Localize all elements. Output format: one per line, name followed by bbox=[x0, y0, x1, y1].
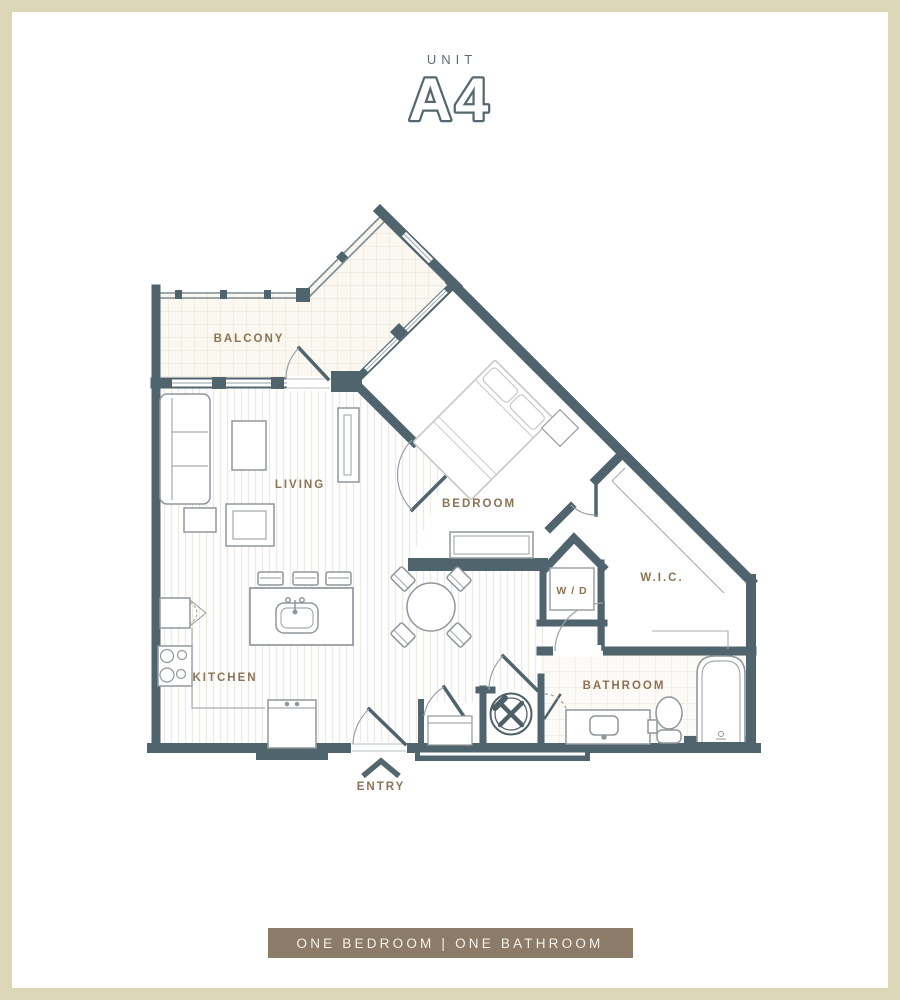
page-frame: UNIT A4 bbox=[0, 0, 900, 1000]
footer-banner: ONE BEDROOM | ONE BATHROOM bbox=[268, 928, 633, 958]
room-label-balcony: BALCONY bbox=[214, 333, 285, 345]
unit-name: A4 bbox=[409, 66, 492, 133]
vanity bbox=[566, 710, 657, 744]
floor-plan-canvas: UNIT A4 bbox=[0, 0, 900, 1000]
room-label-bathroom: BATHROOM bbox=[583, 680, 666, 692]
room-label-wd: W / D bbox=[556, 585, 587, 597]
railing-tick bbox=[220, 290, 227, 299]
entry-arrow-icon bbox=[363, 761, 399, 776]
side-table bbox=[184, 508, 216, 532]
vanity-shelf bbox=[648, 720, 657, 733]
armchair bbox=[226, 504, 274, 546]
coffee-table bbox=[232, 421, 266, 470]
banner-label: ONE BEDROOM | ONE BATHROOM bbox=[297, 936, 604, 951]
room-label-wic: W.I.C. bbox=[640, 572, 683, 584]
window-mullion bbox=[271, 377, 284, 389]
toilet bbox=[656, 697, 682, 743]
kitchen-island bbox=[250, 588, 353, 645]
bathroom-door-gap bbox=[553, 645, 603, 657]
water-heater-icon bbox=[491, 694, 532, 735]
room-label-kitchen: KITCHEN bbox=[192, 672, 257, 684]
room-label-entry: ENTRY bbox=[357, 781, 406, 793]
stove bbox=[158, 646, 192, 686]
window-mullion bbox=[212, 377, 226, 389]
room-label-living: LIVING bbox=[275, 479, 325, 491]
bar-stools bbox=[258, 572, 351, 585]
sofa bbox=[160, 394, 210, 504]
dishwasher bbox=[268, 700, 316, 748]
balcony-door-gap bbox=[287, 376, 331, 391]
unit-eyebrow: UNIT bbox=[427, 52, 477, 67]
bump-closets bbox=[415, 743, 590, 761]
wall-bedroom-south bbox=[408, 558, 548, 571]
dining-table bbox=[407, 583, 455, 631]
railing-end-block bbox=[296, 288, 310, 302]
coat-closet-shelf bbox=[428, 716, 472, 745]
bathtub bbox=[697, 656, 745, 742]
dresser bbox=[450, 532, 533, 558]
railing-tick bbox=[264, 290, 271, 299]
tv-console bbox=[338, 408, 359, 482]
corner-block bbox=[331, 371, 362, 392]
railing-tick bbox=[175, 290, 182, 299]
room-label-bedroom: BEDROOM bbox=[442, 498, 516, 510]
